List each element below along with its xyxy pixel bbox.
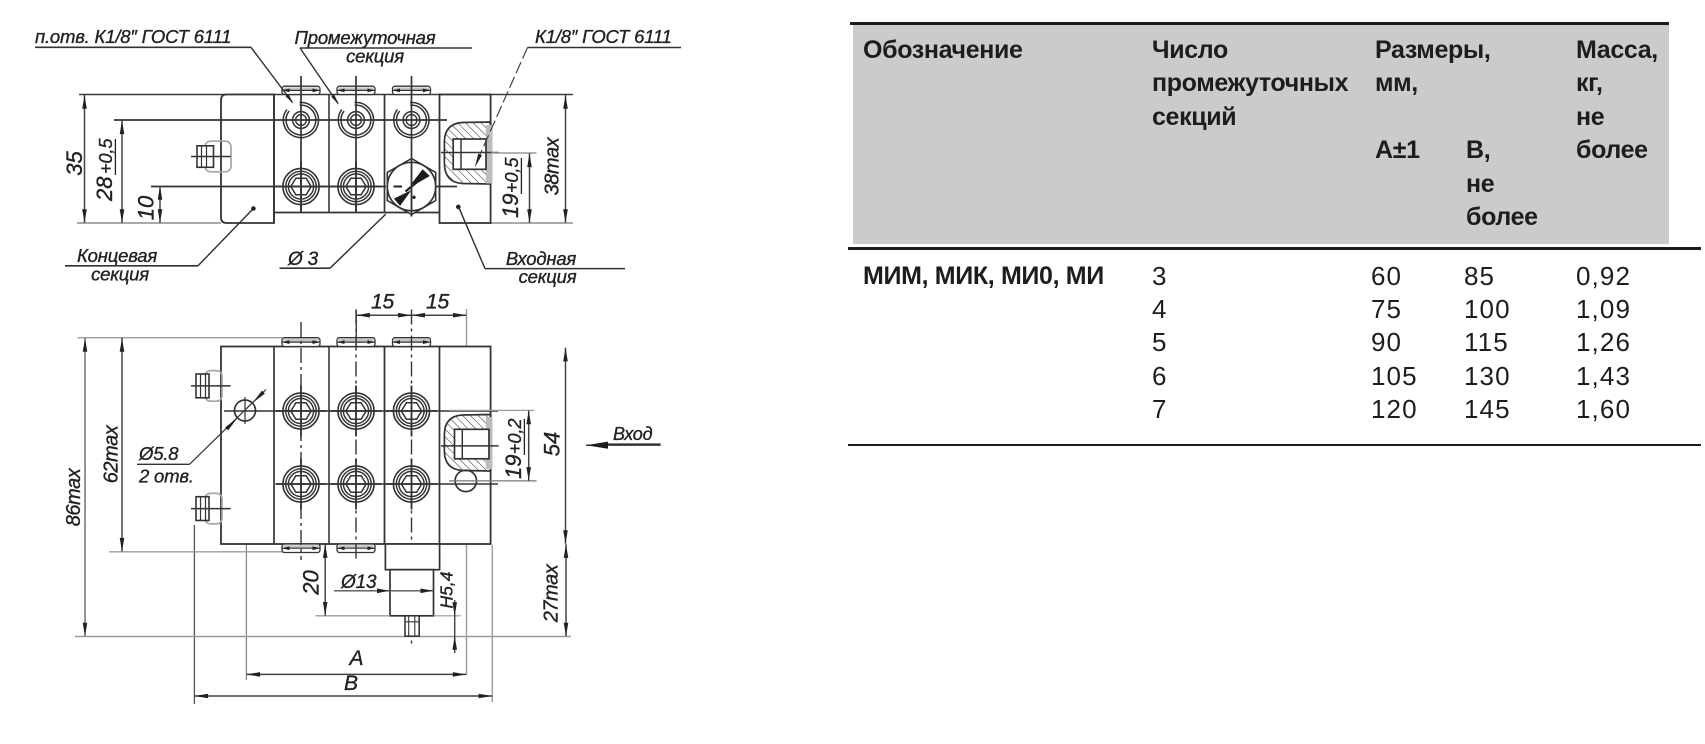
svg-text:Ø5.8: Ø5.8 — [138, 443, 179, 464]
svg-text:+0,5: +0,5 — [502, 156, 522, 193]
svg-text:2 отв.: 2 отв. — [138, 466, 194, 487]
svg-text:54: 54 — [540, 432, 565, 456]
svg-text:А: А — [348, 647, 364, 670]
svg-text:Н5,4: Н5,4 — [437, 571, 457, 608]
svg-text:Вход: Вход — [613, 424, 653, 444]
svg-text:15: 15 — [371, 291, 394, 314]
svg-text:19: 19 — [498, 194, 523, 218]
svg-text:35: 35 — [62, 151, 87, 176]
svg-text:86max: 86max — [63, 467, 85, 526]
svg-text:секция: секция — [91, 264, 149, 285]
svg-text:28: 28 — [92, 176, 117, 202]
svg-text:+0,2: +0,2 — [505, 418, 525, 454]
svg-text:27max: 27max — [541, 563, 563, 623]
svg-text:В: В — [344, 672, 358, 695]
svg-text:38max: 38max — [542, 136, 564, 195]
svg-text:Ø13: Ø13 — [340, 572, 377, 593]
svg-text:19: 19 — [501, 455, 526, 479]
svg-text:п.отв. К1/8″ ГОСТ 6111: п.отв. К1/8″ ГОСТ 6111 — [35, 26, 231, 47]
svg-text:62max: 62max — [101, 424, 123, 483]
svg-text:+0,5: +0,5 — [96, 137, 116, 174]
svg-text:Ø 3: Ø 3 — [287, 249, 319, 270]
svg-text:10: 10 — [134, 195, 159, 220]
svg-text:20: 20 — [299, 570, 324, 596]
svg-text:К1/8″ ГОСТ 6111: К1/8″ ГОСТ 6111 — [535, 26, 672, 47]
svg-text:15: 15 — [426, 291, 449, 314]
